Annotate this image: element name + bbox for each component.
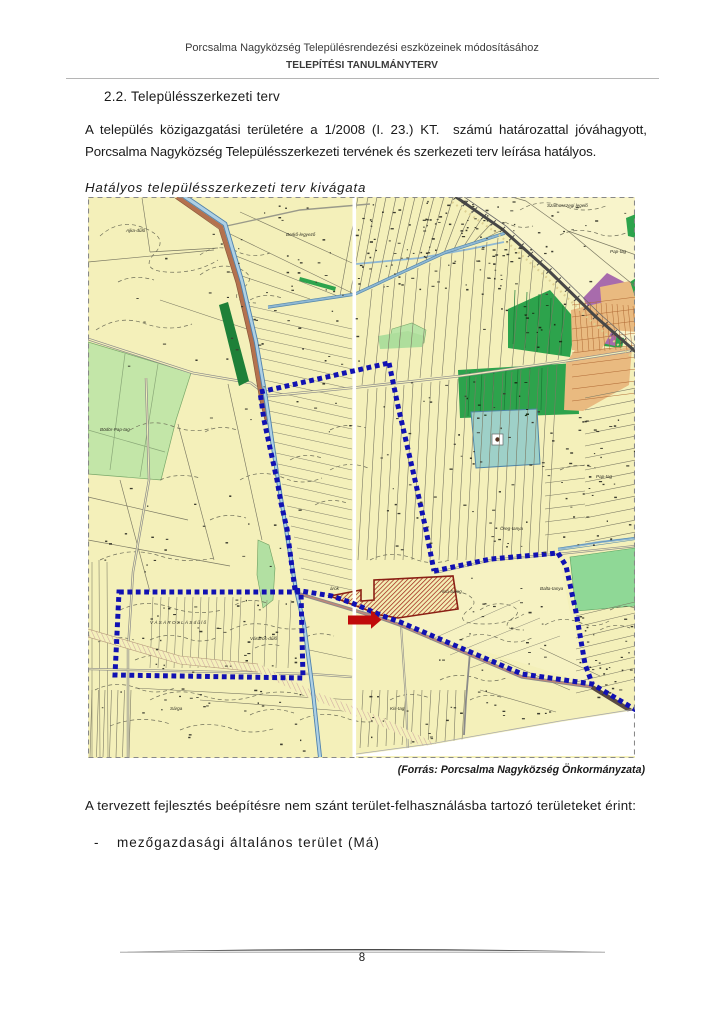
svg-text:Bödör-Pap-tag: Bödör-Pap-tag [100,427,130,432]
svg-text:Pap-tag: Pap-tag [596,474,613,479]
svg-text:Kis-tag: Kis-tag [390,706,405,711]
svg-text:Berkő-legyező: Berkő-legyező [286,232,316,237]
svg-text:árok: árok [330,586,340,591]
svg-text:Balta-tanya: Balta-tanya [540,586,564,591]
svg-text:Vásáros-dűlő: Vásáros-dűlő [250,636,278,641]
svg-text:Öreg-tanya: Öreg-tanya [500,525,523,531]
svg-text:Szamosszegi legelő: Szamosszegi legelő [547,203,588,208]
svg-text:Sárga: Sárga [170,706,183,711]
svg-text:Ajka-dűlő: Ajka-dűlő [125,228,146,233]
svg-text:Alsó-balog: Alsó-balog [439,589,462,594]
svg-text:Pap-tag: Pap-tag [610,249,627,254]
